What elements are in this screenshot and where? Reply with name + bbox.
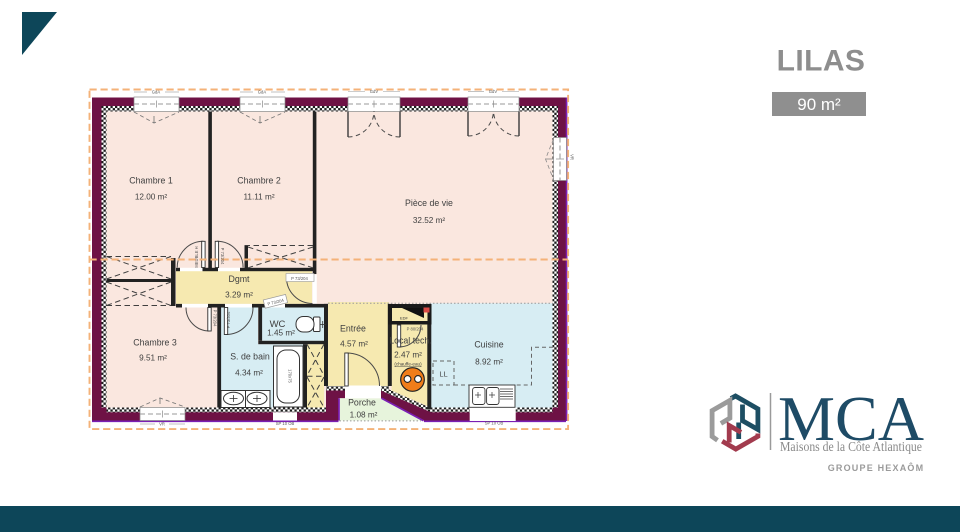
svg-text:P 73/204: P 73/204 (220, 248, 225, 265)
svg-text:LILAS: LILAS (777, 45, 866, 78)
svg-text:SP 10 OB: SP 10 OB (276, 421, 295, 426)
svg-text:(chauffe-eau): (chauffe-eau) (394, 362, 422, 367)
svg-text:Chambre 3: Chambre 3 (133, 337, 177, 347)
svg-text:90 m²: 90 m² (797, 95, 841, 114)
svg-text:9.51 m²: 9.51 m² (139, 354, 167, 363)
svg-text:4.34 m²: 4.34 m² (235, 369, 263, 378)
svg-text:Entrée: Entrée (340, 324, 366, 334)
svg-text:Porche: Porche (348, 398, 376, 408)
svg-text:Dgmt: Dgmt (228, 274, 250, 284)
svg-text:Chambre 1: Chambre 1 (129, 176, 173, 186)
svg-text:P 73/204: P 73/204 (213, 310, 218, 327)
svg-text:1.45 m²: 1.45 m² (267, 329, 295, 338)
svg-text:VR: VR (570, 154, 575, 160)
svg-text:2.47 m²: 2.47 m² (394, 350, 422, 359)
svg-text:Pièce de vie: Pièce de vie (405, 198, 453, 208)
svg-text:3.29 m²: 3.29 m² (225, 290, 253, 299)
svg-text:170x75: 170x75 (287, 369, 292, 383)
svg-text:SP 10 OB: SP 10 OB (485, 421, 504, 426)
svg-text:P 73/204: P 73/204 (226, 311, 231, 328)
svg-text:GROUPE HEXAÔM: GROUPE HEXAÔM (828, 462, 925, 473)
svg-text:MEUBLE H: MEUBLE H (194, 246, 199, 267)
svg-text:12.00 m²: 12.00 m² (135, 193, 168, 202)
svg-text:GdA: GdA (258, 90, 267, 95)
svg-text:VR: VR (159, 422, 165, 427)
svg-text:Local tech.: Local tech. (389, 336, 432, 346)
svg-text:LL: LL (439, 370, 447, 379)
svg-text:Maisons de la Côte Atlantique: Maisons de la Côte Atlantique (780, 439, 922, 454)
svg-text:GdV: GdV (489, 89, 498, 94)
svg-text:8.92 m²: 8.92 m² (475, 357, 503, 366)
svg-text:P 80/204: P 80/204 (407, 327, 424, 332)
svg-text:GdV: GdV (370, 89, 379, 94)
svg-text:Cuisine: Cuisine (474, 339, 503, 349)
svg-text:11.11 m²: 11.11 m² (243, 193, 274, 202)
svg-text:4.57 m²: 4.57 m² (340, 340, 368, 349)
svg-text:Chambre 2: Chambre 2 (237, 176, 281, 186)
svg-text:GdA: GdA (152, 90, 161, 95)
svg-text:P 73/204: P 73/204 (291, 276, 308, 281)
svg-text:S. de bain: S. de bain (230, 352, 270, 362)
svg-text:1.08 m²: 1.08 m² (350, 411, 378, 420)
svg-text:EDF: EDF (400, 316, 409, 321)
svg-text:32.52 m²: 32.52 m² (413, 216, 446, 225)
